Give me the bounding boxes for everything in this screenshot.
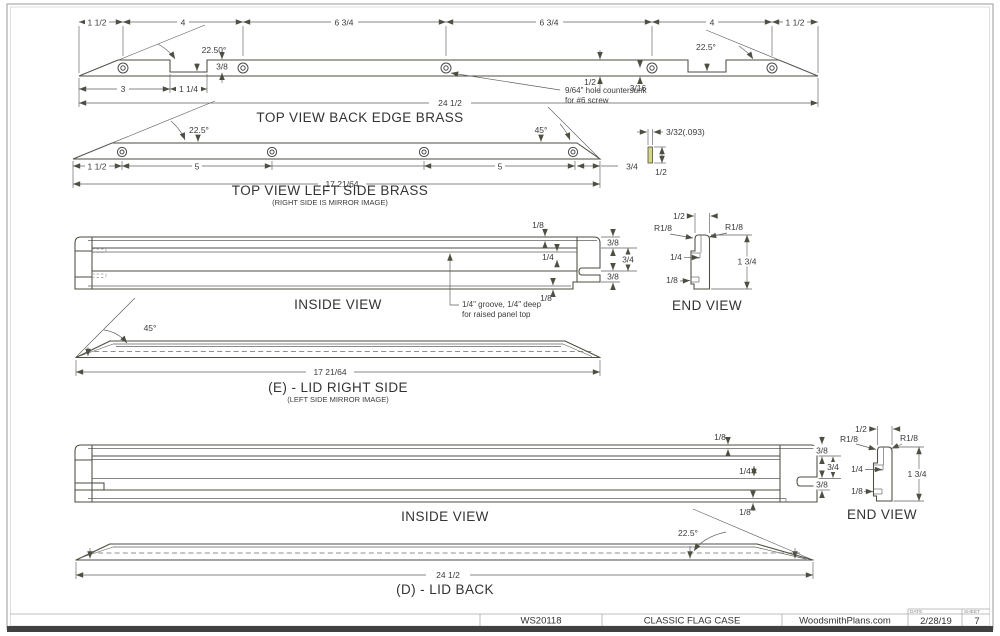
end-top-details <box>691 235 701 282</box>
dim-end2-groove: 1/4 <box>851 464 863 474</box>
dim-rail-bottom-2: 3/8 <box>816 480 828 490</box>
brass-strip-side <box>73 143 600 159</box>
dim-end1-groove: 1/4 <box>670 252 682 262</box>
dim-seg4: 6 3/4 <box>540 18 559 28</box>
dim-seg3: 6 3/4 <box>335 18 354 28</box>
title-top-back: TOP VIEW BACK EDGE BRASS <box>256 110 463 125</box>
end-top-profile <box>691 235 710 289</box>
dim-end2-radius-left: R1/8 <box>840 434 858 444</box>
view-inside-top: 1/8 3/8 3/4 3/8 1/4 1/8 1/4" groove, 1/4… <box>75 220 637 319</box>
strip-section-dimensions: 3/32(.093) 1/2 <box>637 127 705 177</box>
dim-lid-right-overall: 17 21/64 <box>313 367 346 377</box>
dim-end1-notch: 1/8 <box>666 275 678 285</box>
dim-angle-right-side: 45° <box>535 125 548 135</box>
dim-rail-top-2: 3/8 <box>816 446 828 456</box>
dim-end2-notch: 1/8 <box>851 486 863 496</box>
view-end-bottom: 1/2 R1/8 R1/8 1/4 1 3/4 1/8 END VIEW <box>840 424 928 522</box>
inside-top-dimensions: 1/8 3/8 3/4 3/8 1/4 1/8 1/4" groove, 1/4… <box>450 220 637 319</box>
dim-lid-right-angle: 45° <box>144 323 157 333</box>
dim-side-seg4: 3/4 <box>626 162 638 172</box>
inside-bottom-part <box>75 445 817 502</box>
top-back-dimensions: 1 1/2 4 6 3/4 6 3/4 4 1 1/2 22.50° 22.5°… <box>79 16 818 109</box>
dim-tip-to-notch: 3 <box>121 84 126 94</box>
brass-strip-section: 3/32(.093) 1/2 <box>637 127 705 177</box>
dim-lid-back-angle: 22.5° <box>678 528 698 538</box>
plan-drawing: 1 1/2 4 6 3/4 6 3/4 4 1 1/2 22.50° 22.5°… <box>0 0 1000 636</box>
subtitle-lid-right: (LEFT SIDE MIRROR IMAGE) <box>287 395 389 404</box>
sheet-label: SHEET <box>964 609 980 615</box>
dim-seg5: 4 <box>710 18 715 28</box>
title-end-bottom: END VIEW <box>847 507 917 522</box>
plan-title: CLASSIC FLAG CASE <box>644 616 741 627</box>
title-inside-bottom: INSIDE VIEW <box>401 509 489 524</box>
dim-end2-height: 1 3/4 <box>908 469 927 479</box>
groove-note-line1: 1/4" groove, 1/4" deep <box>462 300 542 309</box>
dim-end1-width: 1/2 <box>673 211 685 221</box>
date-label: DATE <box>910 609 922 615</box>
dim-groove-1: 1/4 <box>542 252 554 262</box>
title-lid-right: (E) - LID RIGHT SIDE <box>268 380 408 395</box>
dim-strip-sec-width: 1/2 <box>655 167 667 177</box>
strip-section-shape <box>648 147 653 163</box>
view-top-back-brass: 1 1/2 4 6 3/4 6 3/4 4 1 1/2 22.50° 22.5°… <box>79 16 818 125</box>
title-lid-back: (D) - LID BACK <box>396 582 494 597</box>
screw-holes-side <box>117 147 577 156</box>
dim-rail-top-1: 3/8 <box>607 238 619 248</box>
dim-strip-thickness: 3/32(.093) <box>666 127 705 137</box>
dim-end2-radius-right: R1/8 <box>900 433 918 443</box>
plan-website: WoodsmithPlans.com <box>799 616 891 627</box>
end-bottom-profile <box>874 447 893 501</box>
hole-note-line1: 9/64" hole countersunk <box>565 86 648 95</box>
dim-end1-radius-right: R1/8 <box>725 222 743 232</box>
dim-side-seg2: 5 <box>195 162 200 172</box>
dim-angle-left: 22.50° <box>202 45 227 55</box>
dim-middle-1: 3/4 <box>622 255 634 265</box>
hole-note-line2: for #6 screw <box>565 96 609 105</box>
end-bottom-dimensions: 1/2 R1/8 R1/8 1/4 1 3/4 1/8 <box>840 424 928 501</box>
dim-end2-width: 1/2 <box>855 424 867 434</box>
dim-side-seg1: 1 1/2 <box>88 162 107 172</box>
dim-lid-back-overall: 24 1/2 <box>436 570 460 580</box>
lid-right-part <box>76 341 600 358</box>
dim-notch-width: 1 1/4 <box>179 84 198 94</box>
end-top-dimensions: 1/2 R1/8 R1/8 1/4 1 3/4 1/8 <box>654 211 758 289</box>
dim-lip-top-2: 1/8 <box>714 432 726 442</box>
dim-angle-left-side: 22.5° <box>189 125 209 135</box>
dim-side-seg3: 5 <box>498 162 503 172</box>
dim-end1-height: 1 3/4 <box>738 257 757 267</box>
title-top-left: TOP VIEW LEFT SIDE BRASS <box>232 183 428 198</box>
dim-lip-bottom-1: 1/8 <box>540 293 552 303</box>
dim-seg1: 1 1/2 <box>88 18 107 28</box>
dim-lip-top-1: 1/8 <box>532 220 544 230</box>
bottom-border-bar <box>7 626 993 632</box>
dim-seg2: 4 <box>181 18 186 28</box>
view-inside-bottom: 1/8 3/8 3/4 3/8 1/4 1/8 INSIDE VIEW <box>75 432 842 524</box>
inside-top-part <box>75 237 600 289</box>
dim-angle-right: 22.5° <box>696 42 716 52</box>
dim-groove-2: 1/4 <box>739 466 751 476</box>
lid-back-part <box>76 544 813 560</box>
dim-notch-depth: 3/8 <box>216 62 228 72</box>
plan-date: 2/28/19 <box>920 616 952 627</box>
subtitle-top-left: (RIGHT SIDE IS MIRROR IMAGE) <box>272 198 388 207</box>
drawing-sheet: 1 1/2 4 6 3/4 6 3/4 4 1 1/2 22.50° 22.5°… <box>0 0 1000 636</box>
dim-overall-back: 24 1/2 <box>438 98 462 108</box>
dim-seg6: 1 1/2 <box>786 18 805 28</box>
sheet-number: 7 <box>974 616 979 627</box>
groove-note-line2: for raised panel top <box>462 310 531 319</box>
view-end-top: 1/2 R1/8 R1/8 1/4 1 3/4 1/8 END VIEW <box>654 211 758 313</box>
plan-code: WS20118 <box>520 616 561 627</box>
dim-lip-bottom-2: 1/8 <box>739 507 751 517</box>
dim-end1-radius-left: R1/8 <box>654 223 672 233</box>
title-end-top: END VIEW <box>672 298 742 313</box>
end-bottom-details <box>874 447 884 494</box>
dim-rail-bottom-1: 3/8 <box>607 272 619 282</box>
dim-middle-2: 3/4 <box>827 462 839 472</box>
title-block: WS20118 CLASSIC FLAG CASE WoodsmithPlans… <box>10 609 990 627</box>
title-inside-top: INSIDE VIEW <box>294 297 382 312</box>
